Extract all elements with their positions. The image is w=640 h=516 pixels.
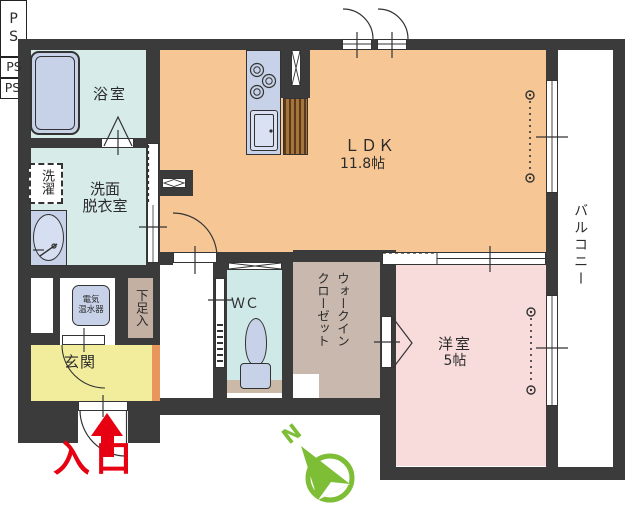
western-room-name: 洋室 xyxy=(420,336,490,353)
water-heater-label: 電気 温水器 xyxy=(72,285,110,326)
wall-wic-top xyxy=(293,250,382,262)
wall-washroom-bottom xyxy=(18,265,160,278)
kitchen-wall-slot xyxy=(291,50,301,86)
wall-service-2 xyxy=(115,278,128,345)
wic-western-door-leaf xyxy=(381,316,392,368)
pipe-space-3-label: PS xyxy=(5,81,20,95)
wall-bath-bottom-b xyxy=(133,138,146,148)
shoe-storage-label: 下足入 xyxy=(130,280,151,336)
pipe-space-1-label: PS xyxy=(5,11,21,47)
wc-transom-window xyxy=(228,262,282,270)
ldk-western-partition xyxy=(382,252,546,265)
bathroom-door-leaf xyxy=(101,138,134,148)
balcony-label: バルコニー xyxy=(572,203,588,288)
walkin-closet-label-col2: クローゼット xyxy=(312,272,332,398)
wc-label: ＷＣ xyxy=(231,296,259,312)
wc-sliding-door xyxy=(215,278,225,368)
laundry-label: 洗濯 xyxy=(38,169,53,195)
ldk-label: ＬＤＫ xyxy=(344,137,395,155)
western-balcony-window xyxy=(546,295,558,406)
wall-bottom-right xyxy=(380,467,625,480)
bathroom-label: 浴室 xyxy=(93,86,127,103)
washroom-label: 洗面 脱衣室 xyxy=(60,181,150,216)
western-room-label: 洋室 5帖 xyxy=(420,336,490,369)
heater-closet-door-leaf xyxy=(62,335,105,345)
western-room-area: 5帖 xyxy=(420,353,490,369)
pipe-space-2-label: PS xyxy=(6,60,21,74)
ldk-top-door-arc-2 xyxy=(378,9,408,39)
wall-right xyxy=(613,39,625,480)
compass-needle xyxy=(301,446,350,500)
corridor-floor xyxy=(160,265,213,398)
walkin-closet-label: ウォークイン クローゼット xyxy=(312,272,352,398)
compass-needle-notch xyxy=(318,482,350,500)
ldk-balcony-window xyxy=(546,80,558,193)
wall-bottom-middle xyxy=(160,398,396,415)
washroom-label-line1: 洗面 xyxy=(60,181,150,198)
compass-north-label: N xyxy=(277,419,306,449)
wall-shoe-bottom xyxy=(128,338,153,345)
wall-ps1-bottom xyxy=(18,333,60,345)
genkan-label: 玄関 xyxy=(64,354,96,371)
wall-bath-bottom-a xyxy=(30,138,103,148)
entry-door-leaf xyxy=(78,401,128,411)
wall-corridor-top-a xyxy=(160,252,173,265)
compass-ring xyxy=(308,456,352,500)
ldk-niche-slot xyxy=(162,178,186,188)
water-heater-label-line2: 温水器 xyxy=(78,306,104,316)
genkan-step-strip xyxy=(152,345,160,401)
toilet-bowl xyxy=(245,318,267,366)
kitchen-bar-counter xyxy=(283,98,308,155)
walkin-closet-label-col1: ウォークイン xyxy=(332,272,352,398)
wall-top xyxy=(18,39,625,50)
bathtub-inner-line xyxy=(35,56,75,130)
ldk-area-label: 11.8帖 xyxy=(340,156,385,172)
toilet-tank xyxy=(240,363,271,389)
entrance-label: 入口 xyxy=(53,438,137,481)
washbasin-bowl xyxy=(33,214,64,261)
ldk-top-door-leaf-2 xyxy=(377,39,407,50)
washroom-label-line2: 脱衣室 xyxy=(60,198,150,215)
kitchen-sink-inner xyxy=(254,114,274,147)
ldk-top-door-arc-1 xyxy=(343,9,373,39)
floor-plan: PS PS PS xyxy=(0,0,640,516)
corridor-ldk-door-leaf xyxy=(173,252,217,263)
kitchen-sink xyxy=(250,110,278,151)
ldk-top-door-leaf-1 xyxy=(342,39,372,50)
bathtub xyxy=(30,51,80,135)
wall-service-3 xyxy=(153,278,160,345)
wall-wc-right xyxy=(282,252,293,398)
